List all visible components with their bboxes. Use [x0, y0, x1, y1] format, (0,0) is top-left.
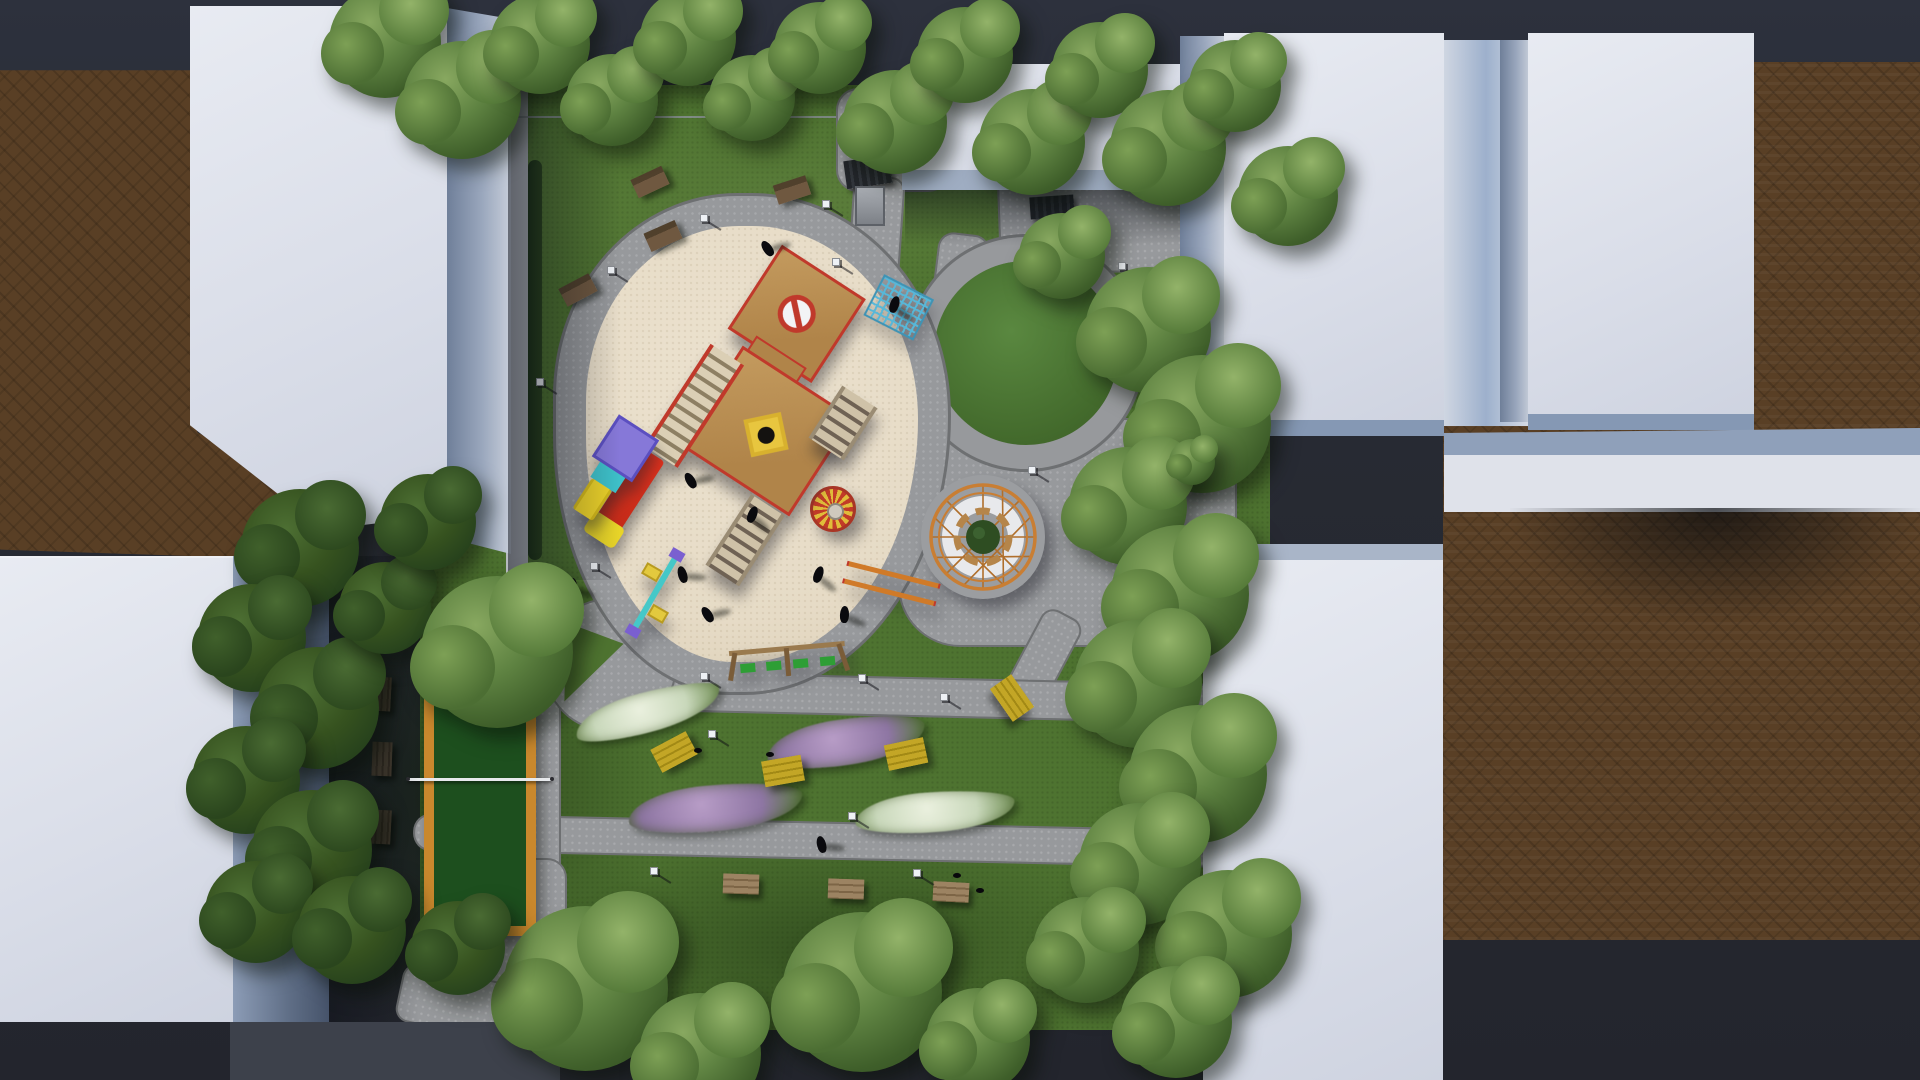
tree [782, 912, 942, 1072]
tree [1169, 439, 1215, 485]
tree [339, 562, 431, 654]
tree [1238, 146, 1338, 246]
tree [421, 576, 573, 728]
tree [1189, 40, 1281, 132]
tree [205, 861, 307, 963]
tree [774, 2, 866, 94]
tree [917, 7, 1013, 103]
tree [298, 876, 406, 984]
tree [380, 474, 476, 570]
tree [1120, 966, 1232, 1078]
tree [926, 988, 1030, 1080]
aerial-park-render [0, 0, 1920, 1080]
tree [1019, 213, 1105, 299]
tree-layer [0, 0, 1920, 1080]
tree [1033, 897, 1139, 1003]
tree [411, 901, 505, 995]
